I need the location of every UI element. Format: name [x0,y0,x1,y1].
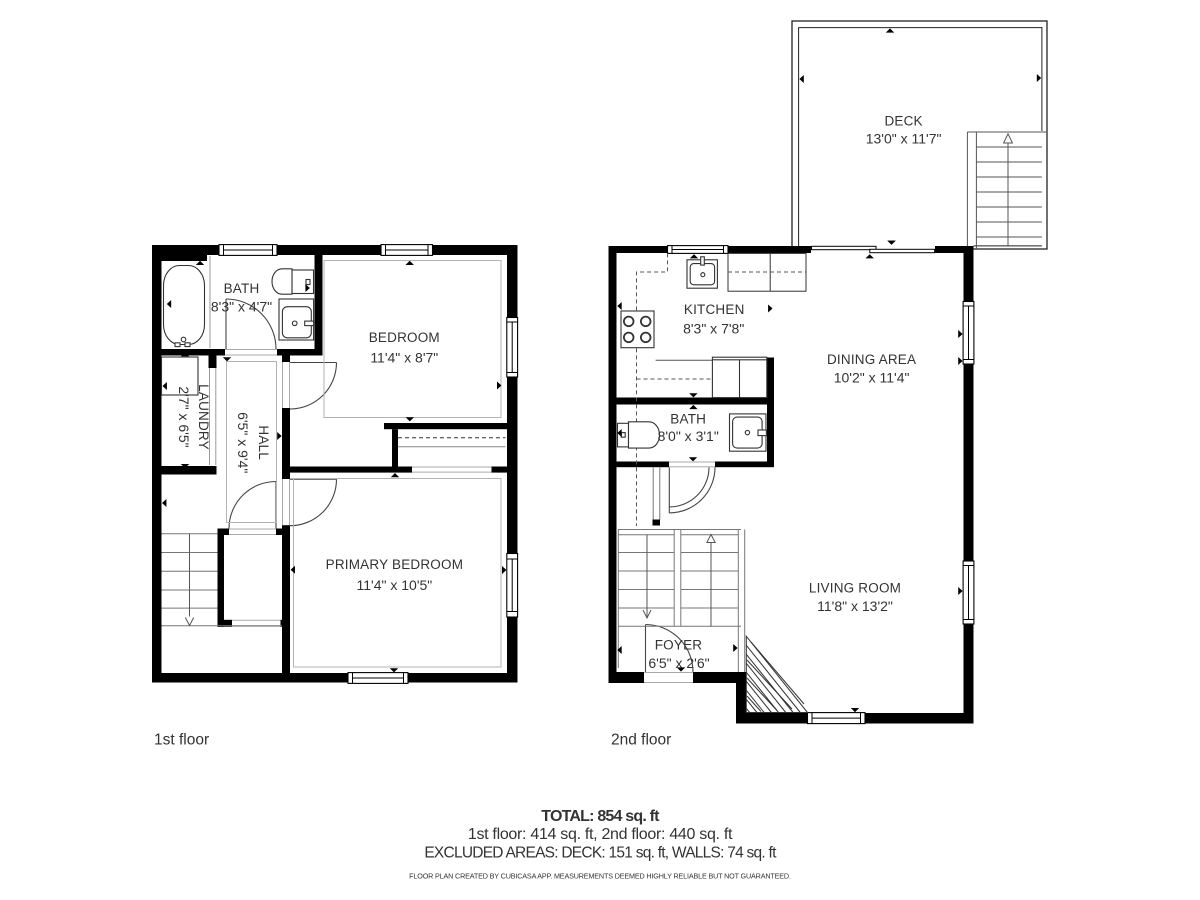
svg-text:13'0" x 11'7": 13'0" x 11'7" [866,131,942,147]
svg-text:8'3" x 4'7": 8'3" x 4'7" [211,298,272,314]
svg-text:11'8" x 13'2": 11'8" x 13'2" [817,598,893,614]
svg-text:8'3" x 7'8": 8'3" x 7'8" [683,321,744,337]
svg-text:EXCLUDED AREAS: DECK: 151 sq.: EXCLUDED AREAS: DECK: 151 sq. ft, WALLS:… [424,845,777,862]
svg-text:PRIMARY BEDROOM: PRIMARY BEDROOM [326,557,464,572]
svg-text:2nd floor: 2nd floor [611,732,671,749]
svg-text:BATH: BATH [670,411,706,426]
svg-text:LIVING ROOM: LIVING ROOM [809,580,901,595]
svg-text:BEDROOM: BEDROOM [369,330,440,345]
svg-text:10'2" x 11'4": 10'2" x 11'4" [834,370,910,386]
svg-text:DINING AREA: DINING AREA [827,352,916,367]
svg-text:2'7" x 6'5": 2'7" x 6'5" [176,386,192,447]
svg-text:TOTAL: 854 sq. ft: TOTAL: 854 sq. ft [541,808,660,825]
svg-text:11'4" x 8'7": 11'4" x 8'7" [370,349,438,365]
svg-text:DECK: DECK [884,114,922,129]
svg-text:KITCHEN: KITCHEN [684,302,745,317]
svg-text:BATH: BATH [224,281,260,296]
svg-text:11'4" x 10'5": 11'4" x 10'5" [357,577,433,593]
svg-text:1st floor: 414 sq. ft, 2nd flo: 1st floor: 414 sq. ft, 2nd floor: 440 sq… [468,826,733,843]
svg-text:FOYER: FOYER [655,637,703,652]
svg-text:FLOOR PLAN CREATED BY CUBICASA: FLOOR PLAN CREATED BY CUBICASA APP. MEAS… [409,872,791,881]
svg-text:8'0" x 3'1": 8'0" x 3'1" [658,428,719,444]
svg-text:1st floor: 1st floor [154,732,209,749]
svg-text:LAUNDRY: LAUNDRY [196,384,211,450]
svg-text:6'5" x 9'4": 6'5" x 9'4" [235,412,251,473]
svg-text:HALL: HALL [256,425,271,460]
